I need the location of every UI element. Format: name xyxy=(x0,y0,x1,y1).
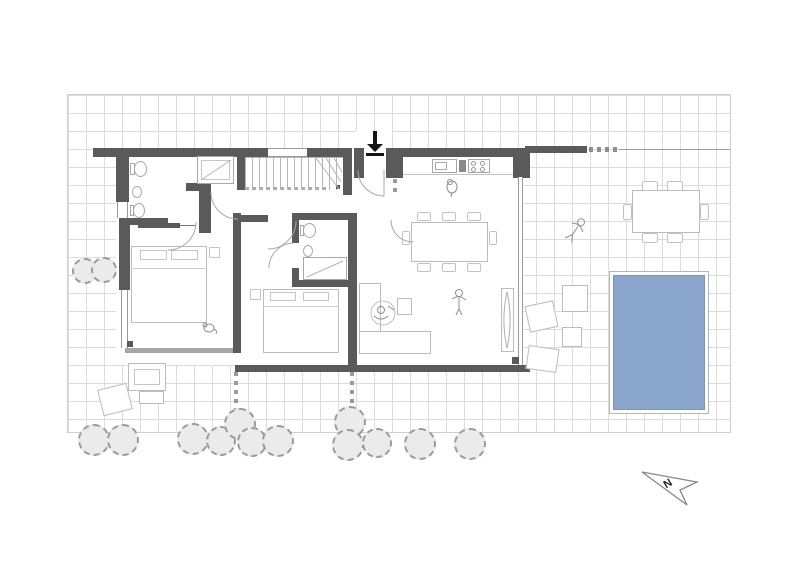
planter-inner xyxy=(134,369,160,385)
pool xyxy=(609,271,709,414)
tree xyxy=(177,423,209,455)
lounge-seat xyxy=(525,345,559,373)
pillow xyxy=(303,292,329,301)
outdoor-chair xyxy=(642,181,658,191)
dining-chair xyxy=(402,231,410,245)
toilet-tank xyxy=(130,163,135,175)
wall-bath1-h xyxy=(186,183,211,191)
glass-wall-bedroom1-south xyxy=(125,348,237,353)
stove-burner xyxy=(480,167,485,172)
dining-table xyxy=(411,222,488,262)
blanket-line xyxy=(131,268,207,269)
toilet-tank xyxy=(130,205,134,216)
dining-chair xyxy=(442,263,456,272)
dining-chair xyxy=(489,231,497,245)
wall-bath1-v xyxy=(199,191,211,233)
outdoor-chair xyxy=(642,233,658,243)
corner-dot-bedroom1 xyxy=(127,341,133,347)
nightstand xyxy=(209,247,220,258)
shower-tray xyxy=(303,257,347,280)
tree xyxy=(262,425,294,457)
corner-dot-living xyxy=(512,357,519,364)
tree xyxy=(454,428,486,460)
tree xyxy=(332,429,364,461)
pool-water xyxy=(613,275,705,410)
toilet-tank xyxy=(300,225,304,236)
entry-arrow-shaft xyxy=(373,131,377,144)
dining-chair xyxy=(467,212,481,221)
tree xyxy=(404,428,436,460)
kitchen-oven xyxy=(459,160,466,172)
wall-bedroom2-living xyxy=(348,213,357,372)
side-table xyxy=(397,298,412,315)
outdoor-chair xyxy=(623,204,632,220)
stair-newel-dot xyxy=(336,185,340,189)
toilet-bowl xyxy=(133,203,145,218)
kitchen-counter xyxy=(403,157,513,175)
stair-cut-line xyxy=(246,187,330,190)
wall-left-upper xyxy=(116,157,129,202)
outdoor-table xyxy=(632,190,700,233)
wall-left-mid xyxy=(119,218,130,290)
bidet xyxy=(303,245,313,257)
north-arrow-label: N xyxy=(661,477,674,491)
entry-threshold-bar xyxy=(366,153,384,156)
dining-chair xyxy=(442,212,456,221)
outdoor-chair xyxy=(667,233,683,243)
pillow xyxy=(140,250,167,260)
planter-tall xyxy=(501,288,514,352)
wall-bath2-left-a xyxy=(292,213,299,243)
outdoor-chair xyxy=(700,204,709,220)
kitchen-sink-basin xyxy=(435,162,447,170)
entry-jamb-left xyxy=(354,148,364,178)
wall-stairs-left xyxy=(237,157,245,190)
property-line-right xyxy=(619,149,730,150)
pillow xyxy=(171,250,198,260)
vanity-handle xyxy=(180,225,196,226)
stove-burner xyxy=(471,167,476,172)
bush xyxy=(91,257,117,283)
entry-arrow-head xyxy=(367,144,383,152)
outdoor-chair xyxy=(667,181,683,191)
planter xyxy=(139,391,164,404)
wall-dashed-continuation xyxy=(589,147,619,152)
wall-bedroom1-bedroom2 xyxy=(233,213,241,353)
tree xyxy=(78,424,110,456)
dining-chair xyxy=(417,263,431,272)
wall-top-left xyxy=(93,148,268,157)
lounge-seat xyxy=(562,327,582,347)
window-top xyxy=(268,148,307,157)
wall-top-kitchen xyxy=(403,148,513,157)
tree xyxy=(107,424,139,456)
bidet xyxy=(132,186,142,198)
sofa-seat xyxy=(359,331,431,354)
dining-chair xyxy=(417,212,431,221)
north-arrow: N xyxy=(642,472,697,505)
staircase xyxy=(245,157,343,190)
shower-tray-inner xyxy=(201,160,230,180)
vanity-counter xyxy=(138,223,180,228)
window-left-lower xyxy=(121,290,128,348)
wall-stairs-right xyxy=(343,148,352,195)
entry-dashes xyxy=(393,179,397,197)
overhang-dash-left xyxy=(234,372,238,412)
lounge-seat xyxy=(562,285,588,312)
pillow xyxy=(270,292,296,301)
blanket-line xyxy=(263,306,339,307)
toilet-bowl xyxy=(134,161,147,177)
dining-chair xyxy=(467,263,481,272)
wall-top-right xyxy=(525,146,587,153)
wall-bedroom2-top xyxy=(241,215,268,222)
floor-plan: N xyxy=(0,0,800,564)
stove-burner xyxy=(471,161,476,166)
nightstand xyxy=(250,289,261,300)
wall-bottom xyxy=(235,365,530,372)
entry-jamb-right xyxy=(386,148,403,178)
window-left-upper xyxy=(117,202,128,218)
stove-burner xyxy=(480,161,485,166)
north-arrow-shape xyxy=(642,472,697,505)
toilet-bowl xyxy=(303,223,316,238)
tree xyxy=(362,428,392,458)
glass-wall-living-east xyxy=(518,177,523,365)
